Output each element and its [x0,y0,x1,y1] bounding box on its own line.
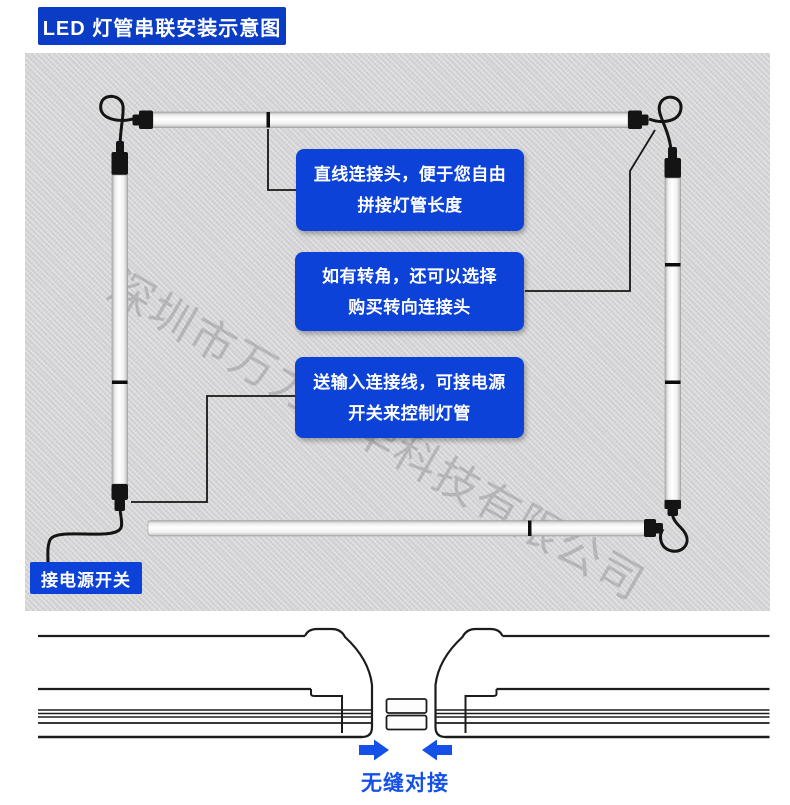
tube-left-cap-bottom-tip [115,499,126,511]
arrow-left-icon [422,740,452,761]
tube-left-body [112,175,128,484]
callout2-line1: 如有转角，还可以选择 [322,261,497,292]
seamless-joint-diagram: 无缝对接 [0,615,790,805]
tube-right-junction-1 [665,263,681,267]
page: LED 灯管串联安装示意图 深圳市万力凡华科技有限公司 [0,0,790,805]
callout-straight-connector: 直线连接头，便于您自由 拼接灯管长度 [296,149,524,231]
loop-bottom-right [660,512,687,551]
tube-right-body [665,178,681,500]
tube-left-cap-top [112,152,129,175]
tube-right-cap-top [665,158,682,178]
right-tube-profile [436,629,770,737]
connector-line-3 [131,396,296,502]
callout3-line2: 开关来控制灯管 [348,398,471,429]
title-badge: LED 灯管串联安装示意图 [38,7,286,45]
loop-top-left [101,96,133,148]
power-wire [48,508,122,563]
right-strip-lines [437,710,770,717]
tube-left-junction [112,381,128,385]
callout-corner-connector: 如有转角，还可以选择 购买转向连接头 [295,252,524,331]
left-inner-contour [311,689,342,733]
arrow-right-icon [359,740,389,761]
diagram-panel: 深圳市万力凡华科技有限公司 [25,53,770,611]
callout3-line1: 送输入连接线，可接电源 [313,367,506,398]
connector-line-1 [268,129,298,190]
center-connector [387,699,427,730]
callout1-line1: 直线连接头，便于您自由 [314,159,507,190]
tube-top-body [153,112,628,128]
callout1-line2: 拼接灯管长度 [358,190,463,221]
callout2-line2: 购买转向连接头 [348,292,471,323]
connector-line-2 [525,130,655,291]
callout-input-cable: 送输入连接线，可接电源 开关来控制灯管 [295,357,524,438]
tube-top-cap-right [628,111,642,130]
tube-layout-diagram [25,53,770,611]
tube-left [112,141,129,511]
tube-right-cap-bottom [665,500,682,509]
page-title: LED 灯管串联安装示意图 [43,12,282,41]
tube-bottom-body [148,521,645,537]
left-endcap-outline [305,629,372,737]
tube-top-cap-left [139,111,153,130]
right-inner-contour [466,689,497,733]
connector-upper-half [387,699,427,713]
tube-bottom [148,519,663,537]
tube-left-cap-bottom [112,484,129,500]
power-switch-badge: 接电源开关 [30,562,142,594]
left-tube-profile [38,629,372,737]
seamless-label: 无缝对接 [345,767,465,797]
tube-right-junction-2 [665,381,681,385]
tube-bottom-junction [528,521,532,537]
converge-arrows [359,740,452,761]
left-strip-lines [38,710,371,717]
tube-top-junction [267,112,271,128]
tube-top [133,111,649,130]
connector-lower-half [387,716,427,730]
tube-right-cap-bottom-tip [668,508,679,516]
tube-top-cap-left-tip [133,115,141,126]
right-endcap-outline [436,629,503,737]
loop-top-right [649,97,681,149]
tube-bottom-cap-right [644,519,656,537]
tube-right [665,147,682,516]
tube-bottom-cap-right-tip [655,523,664,534]
tube-top-cap-right-tip [641,115,649,126]
